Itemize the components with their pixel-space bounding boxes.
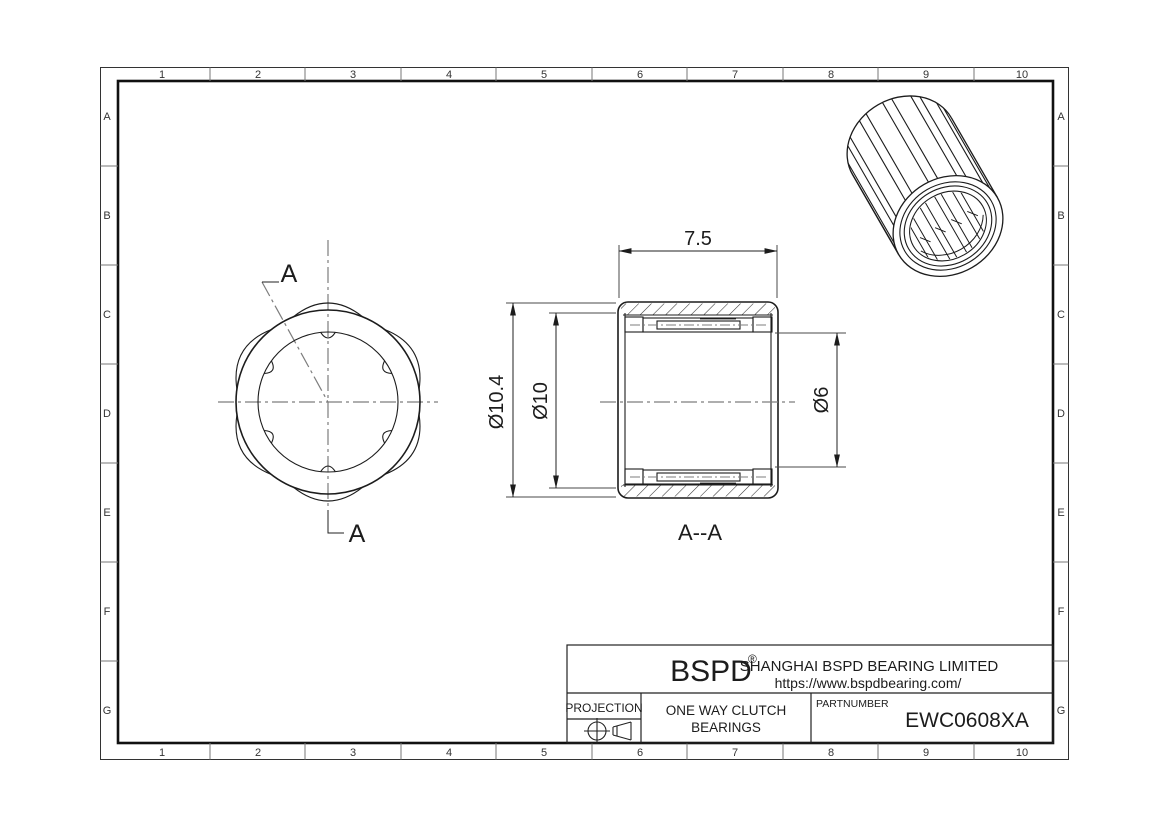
- section-label: A--A: [678, 520, 722, 545]
- zone-labels-left: A B C D E F G: [103, 111, 112, 717]
- zone-label: C: [103, 309, 111, 321]
- shell-hatch-top: [621, 304, 775, 316]
- zone-label: F: [104, 606, 111, 618]
- zone-label: 8: [828, 69, 834, 81]
- cut-label-bottom: A: [349, 520, 366, 548]
- zone-label: E: [1057, 507, 1064, 519]
- zone-label: 1: [159, 69, 165, 81]
- engineering-drawing-sheet: 1 2 3 4 5 6 7 8 9 10 1 2 3 4 5 6 7 8 9 1…: [0, 0, 1170, 827]
- dimension-width: 7.5: [619, 228, 777, 298]
- dimension-shell-diameter: Ø10: [530, 313, 616, 488]
- zone-label: 3: [350, 69, 356, 81]
- zone-label: 9: [923, 747, 929, 759]
- zone-label: 10: [1016, 747, 1028, 759]
- zone-label: E: [103, 507, 110, 519]
- section-view: 7.5 Ø10.4 Ø10 Ø6 A--A: [486, 228, 846, 545]
- zone-label: D: [1057, 408, 1065, 420]
- projection-cell: PROJECTION: [565, 701, 642, 744]
- zone-label: A: [103, 111, 111, 123]
- shell-inner-lines: [623, 313, 773, 487]
- front-view: A A: [218, 240, 438, 548]
- zone-label: 5: [541, 69, 547, 81]
- product-line2: BEARINGS: [691, 720, 761, 735]
- first-angle-projection-icon: [584, 718, 631, 744]
- dimension-bore-diameter: Ø6: [775, 333, 846, 467]
- roller-row-bottom: [625, 469, 772, 484]
- dim-od-text: Ø10.4: [486, 375, 508, 429]
- back-rim: [829, 76, 952, 175]
- isometric-view: [829, 76, 1022, 296]
- zone-label: 6: [637, 747, 643, 759]
- drawing-frame: 1 2 3 4 5 6 7 8 9 10 1 2 3 4 5 6 7 8 9 1…: [101, 68, 1069, 760]
- zone-label: 3: [350, 747, 356, 759]
- zone-label: 2: [255, 69, 261, 81]
- zone-label: B: [103, 210, 110, 222]
- zone-label: 4: [446, 747, 452, 759]
- zone-labels-right: A B C D E F G: [1057, 111, 1066, 717]
- zone-label: 5: [541, 747, 547, 759]
- shell-hatch-bottom: [621, 485, 775, 497]
- cut-leader-bottom: [328, 510, 344, 533]
- zone-label: G: [103, 705, 112, 717]
- zone-label: 1: [159, 747, 165, 759]
- roller-row-top: [625, 317, 772, 332]
- zone-label: B: [1057, 210, 1064, 222]
- zone-label: 9: [923, 69, 929, 81]
- company-website: https://www.bspdbearing.com/: [775, 675, 962, 691]
- zone-label: G: [1057, 705, 1066, 717]
- centerline-diagonal: [262, 282, 328, 402]
- zone-label: 2: [255, 747, 261, 759]
- product-line1: ONE WAY CLUTCH: [666, 703, 787, 718]
- zone-label: F: [1058, 606, 1065, 618]
- zone-labels-bottom: 1 2 3 4 5 6 7 8 9 10: [159, 747, 1028, 759]
- projection-label: PROJECTION: [565, 701, 642, 715]
- zone-label: 7: [732, 69, 738, 81]
- zone-label: 4: [446, 69, 452, 81]
- zone-label: A: [1057, 111, 1065, 123]
- dim-width-text: 7.5: [684, 228, 712, 250]
- zone-label: D: [103, 408, 111, 420]
- zone-labels-top: 1 2 3 4 5 6 7 8 9 10: [159, 69, 1028, 81]
- zone-ticks: [101, 68, 1069, 760]
- dim-shell-text: Ø10: [530, 382, 552, 420]
- zone-label: 8: [828, 747, 834, 759]
- product-cell: ONE WAY CLUTCH BEARINGS: [666, 703, 787, 735]
- zone-label: 7: [732, 747, 738, 759]
- partnumber-value: EWC0608XA: [905, 709, 1029, 732]
- title-block: BSPD ® SHANGHAI BSPD BEARING LIMITED htt…: [565, 645, 1053, 744]
- title-block-header: BSPD ® SHANGHAI BSPD BEARING LIMITED htt…: [670, 652, 998, 691]
- zone-label: 10: [1016, 69, 1028, 81]
- partnumber-label: PARTNUMBER: [816, 698, 889, 710]
- zone-label: C: [1057, 309, 1065, 321]
- partnumber-cell: PARTNUMBER EWC0608XA: [816, 698, 1029, 732]
- zone-label: 6: [637, 69, 643, 81]
- company-name: SHANGHAI BSPD BEARING LIMITED: [740, 658, 999, 675]
- cut-label-top: A: [281, 260, 298, 288]
- dim-bore-text: Ø6: [811, 387, 833, 414]
